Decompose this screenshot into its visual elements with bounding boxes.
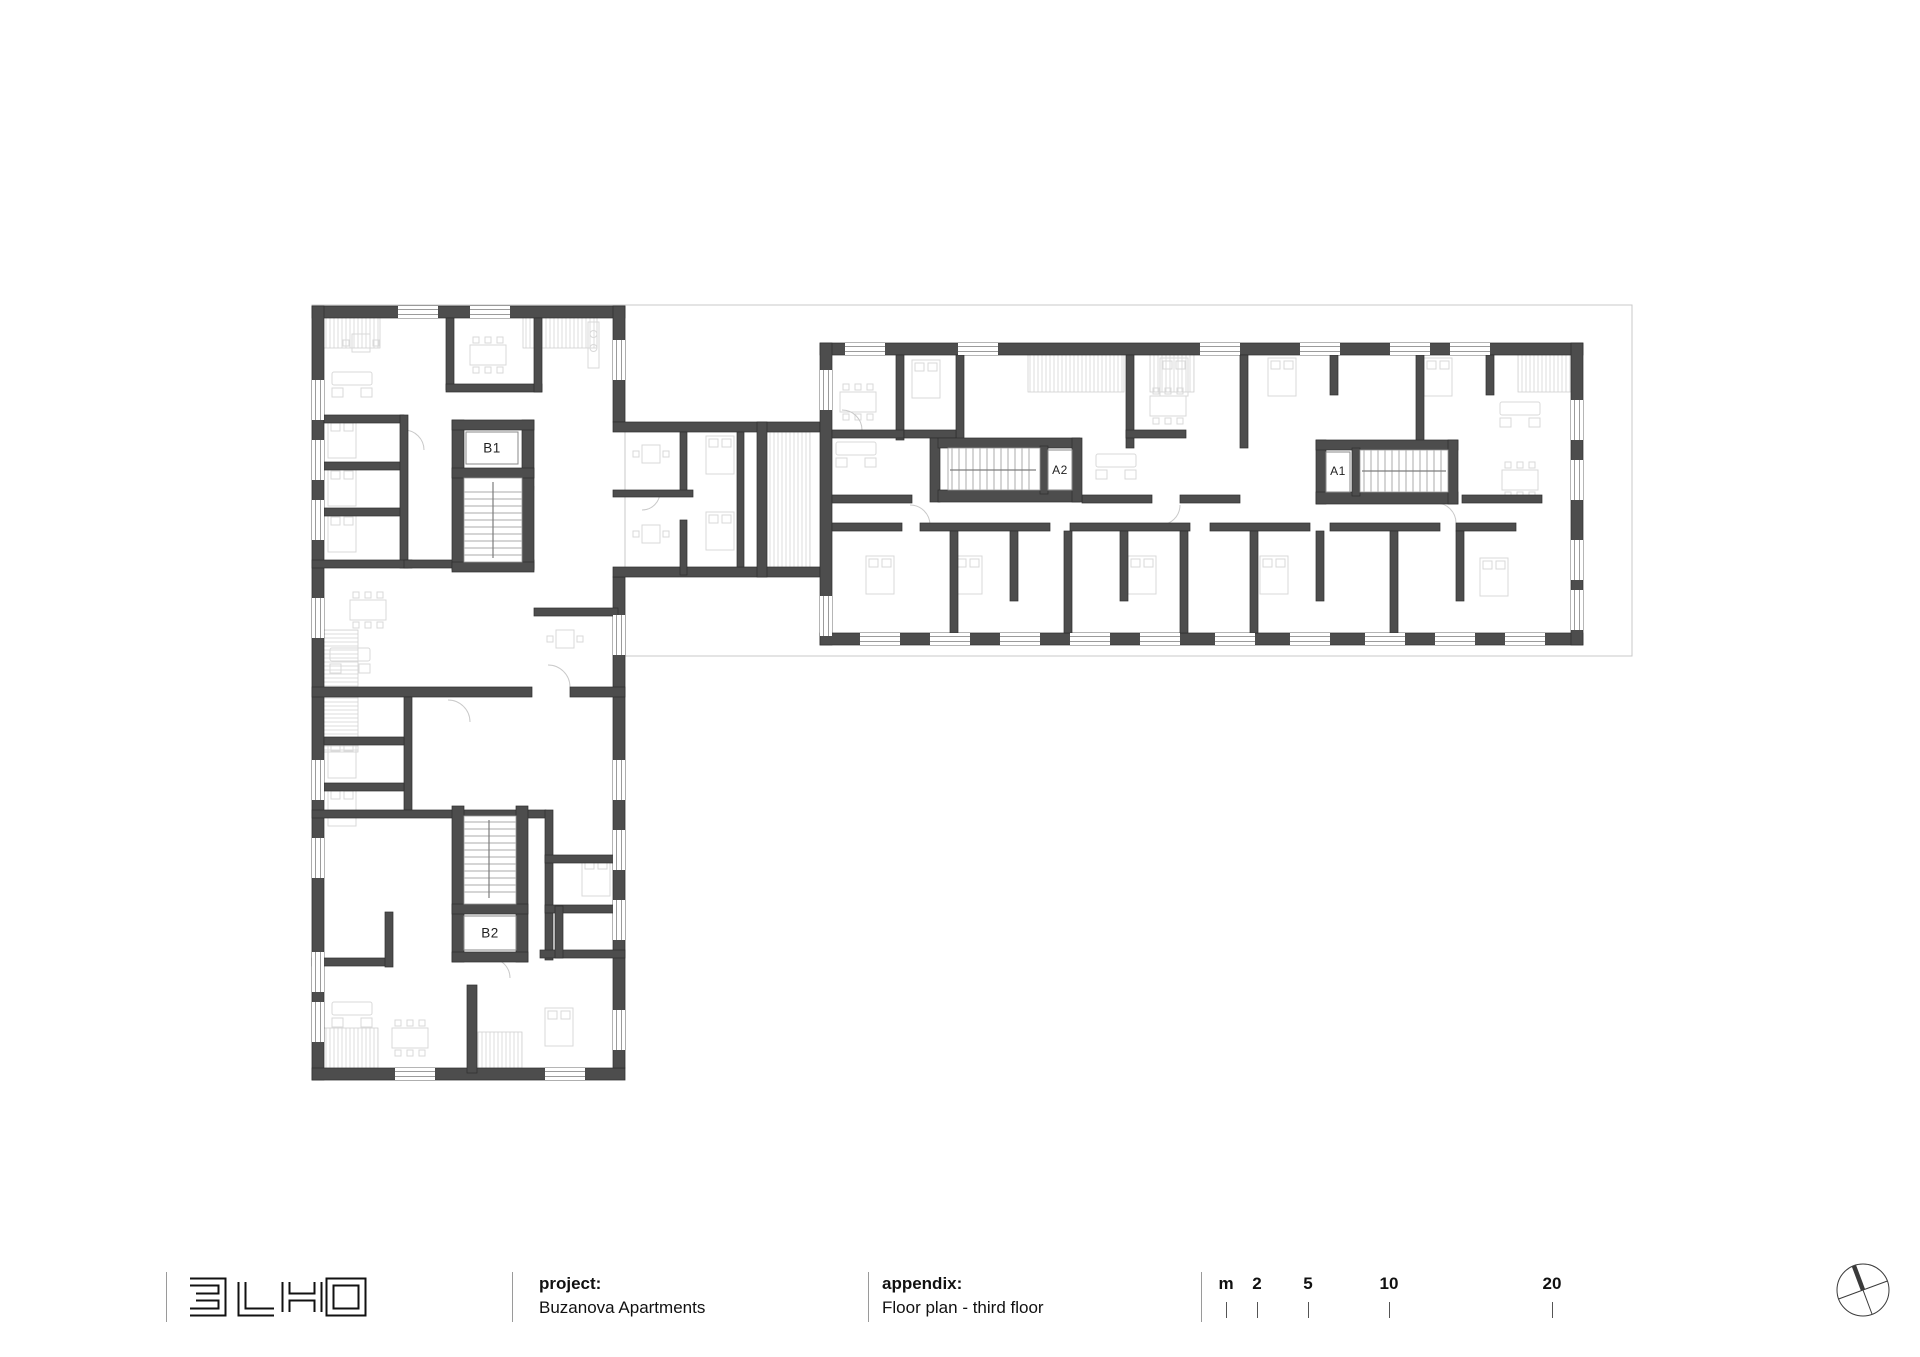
stair-b1 — [464, 478, 522, 562]
scale-tick — [1257, 1302, 1258, 1318]
page: { "plan": { "units": [ {"label": "B1"}, … — [0, 0, 1920, 1357]
stair-a1 — [1360, 450, 1448, 492]
unit-label-a2: A2 — [1052, 463, 1068, 477]
scale-tick — [1308, 1302, 1309, 1318]
scale-tick — [1389, 1302, 1390, 1318]
stair-b2 — [464, 816, 516, 904]
footer-divider — [166, 1272, 167, 1322]
unit-label-a1: A1 — [1330, 464, 1346, 478]
floor-plan-drawing — [0, 0, 1920, 1357]
scale-mark-20: 20 — [1543, 1274, 1562, 1294]
scale-mark-5: 5 — [1303, 1274, 1312, 1294]
project-value: Buzanova Apartments — [539, 1298, 705, 1318]
project-label: project: — [539, 1274, 601, 1294]
north-arrow-icon — [1837, 1264, 1889, 1316]
appendix-value: Floor plan - third floor — [882, 1298, 1044, 1318]
footer-divider — [512, 1272, 513, 1322]
scale-mark-2: 2 — [1252, 1274, 1261, 1294]
unit-label-b2: B2 — [481, 926, 499, 941]
stair-a2 — [948, 448, 1040, 490]
appendix-label: appendix: — [882, 1274, 962, 1294]
right-wing-walls — [820, 343, 1583, 645]
logo-3lhd — [190, 1282, 362, 1312]
scale-mark-10: 10 — [1380, 1274, 1399, 1294]
unit-label-b1: B1 — [483, 441, 501, 456]
scale-tick — [1552, 1302, 1553, 1318]
scale-tick — [1226, 1302, 1227, 1318]
footer-divider — [868, 1272, 869, 1322]
left-wing-walls — [312, 306, 625, 1080]
scale-unit: m — [1218, 1274, 1233, 1294]
footer-divider — [1201, 1272, 1202, 1322]
